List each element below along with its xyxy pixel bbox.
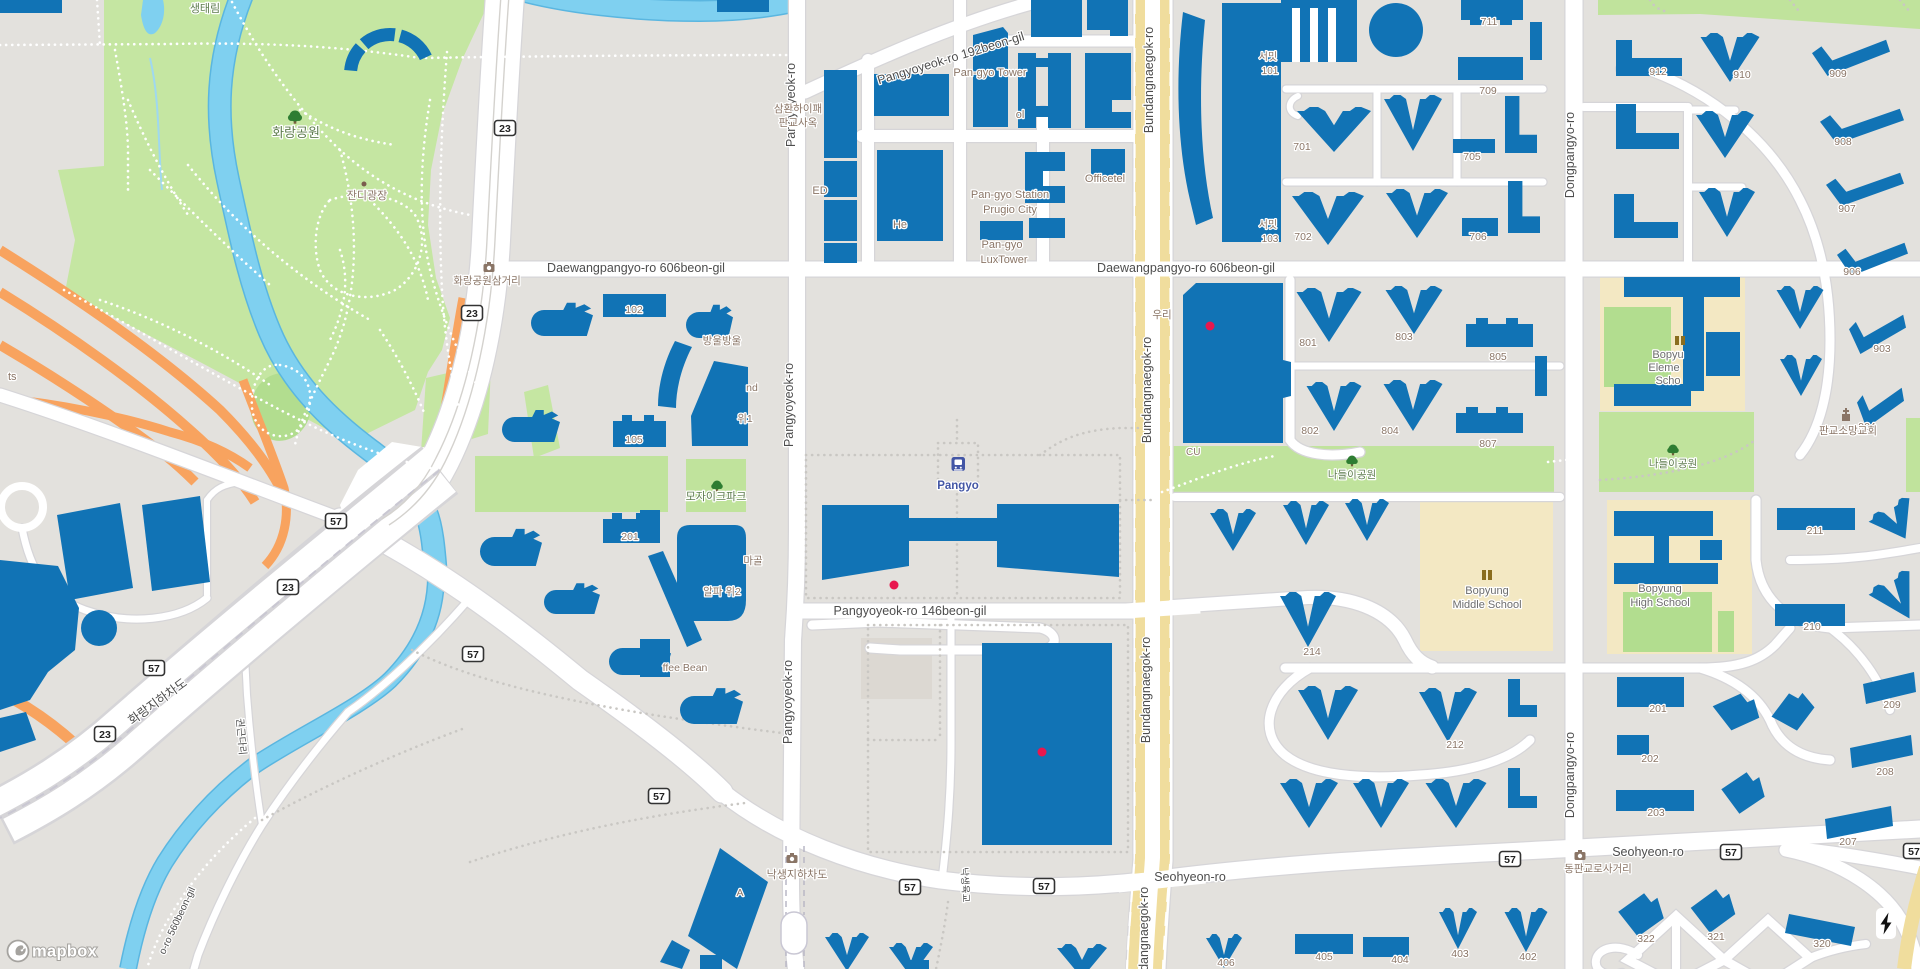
svg-text:Daewangpangyo-ro 606beon-gil: Daewangpangyo-ro 606beon-gil xyxy=(547,261,725,275)
svg-text:Dongpangyo-ro: Dongpangyo-ro xyxy=(1563,732,1577,818)
svg-text:Pangyo: Pangyo xyxy=(937,480,979,492)
svg-text:Prugio City: Prugio City xyxy=(983,204,1037,216)
svg-text:202: 202 xyxy=(1641,753,1659,765)
svg-text:Bundangnaegok-ro: Bundangnaegok-ro xyxy=(1137,887,1151,969)
svg-text:Pangyoyeok-ro 146beon-gil: Pangyoyeok-ro 146beon-gil xyxy=(834,604,987,618)
svg-text:마골: 마골 xyxy=(743,555,763,567)
svg-text:위1: 위1 xyxy=(737,412,753,425)
svg-text:57: 57 xyxy=(1038,881,1050,893)
svg-text:ffee Bean: ffee Bean xyxy=(663,662,708,674)
svg-text:705: 705 xyxy=(1463,151,1481,163)
svg-text:CU: CU xyxy=(1186,447,1200,458)
svg-text:동판교로사거리: 동판교로사거리 xyxy=(1564,863,1632,875)
svg-text:906: 906 xyxy=(1843,266,1861,278)
svg-text:23: 23 xyxy=(99,729,111,741)
svg-text:57: 57 xyxy=(1725,847,1737,859)
svg-text:706: 706 xyxy=(1469,231,1487,243)
svg-text:910: 910 xyxy=(1733,69,1751,81)
svg-text:907: 907 xyxy=(1838,203,1856,215)
svg-text:서밋: 서밋 xyxy=(1259,51,1277,63)
svg-text:403: 403 xyxy=(1451,948,1469,960)
svg-text:211: 211 xyxy=(1807,525,1824,537)
svg-text:406: 406 xyxy=(1217,957,1235,969)
svg-text:알파 위2: 알파 위2 xyxy=(703,585,741,598)
svg-text:57: 57 xyxy=(653,791,665,803)
svg-text:404: 404 xyxy=(1391,954,1409,966)
svg-text:High School: High School xyxy=(1630,597,1689,609)
svg-text:405: 405 xyxy=(1315,951,1333,963)
svg-text:Seohyeon-ro: Seohyeon-ro xyxy=(1612,845,1684,859)
svg-text:709: 709 xyxy=(1479,85,1497,97)
svg-text:He: He xyxy=(893,219,907,231)
svg-text:201: 201 xyxy=(1649,703,1667,715)
svg-text:57: 57 xyxy=(467,649,479,661)
svg-text:A: A xyxy=(736,887,743,899)
svg-text:57: 57 xyxy=(1504,854,1516,866)
svg-text:판교사옥: 판교사옥 xyxy=(779,117,818,129)
svg-text:서밋: 서밋 xyxy=(1259,219,1277,231)
svg-text:판교소망교회: 판교소망교회 xyxy=(1819,425,1877,437)
svg-text:ED: ED xyxy=(812,185,827,197)
svg-text:207: 207 xyxy=(1839,836,1857,848)
svg-text:208: 208 xyxy=(1876,766,1894,778)
svg-text:23: 23 xyxy=(466,308,478,320)
svg-text:57: 57 xyxy=(904,882,916,894)
svg-text:모자이크파크: 모자이크파크 xyxy=(686,490,747,503)
svg-text:Bundangnaegok-ro: Bundangnaegok-ro xyxy=(1142,27,1156,133)
svg-text:Bundangnaegok-ro: Bundangnaegok-ro xyxy=(1140,337,1154,443)
svg-text:ts: ts xyxy=(8,371,17,383)
svg-text:나들이공원: 나들이공원 xyxy=(1649,458,1697,470)
svg-text:909: 909 xyxy=(1829,68,1847,80)
svg-text:나들이공원: 나들이공원 xyxy=(1328,469,1376,481)
svg-text:214: 214 xyxy=(1303,646,1321,658)
svg-text:903: 903 xyxy=(1873,343,1891,355)
svg-text:잔디광장: 잔디광장 xyxy=(347,189,387,202)
svg-text:209: 209 xyxy=(1883,699,1901,711)
svg-text:201: 201 xyxy=(621,531,639,543)
svg-text:801: 801 xyxy=(1299,337,1317,349)
svg-text:57: 57 xyxy=(330,516,342,528)
svg-text:103: 103 xyxy=(1262,234,1279,245)
svg-text:Dongpangyo-ro: Dongpangyo-ro xyxy=(1563,112,1577,198)
svg-text:Seohyeon-ro: Seohyeon-ro xyxy=(1154,870,1226,884)
svg-text:Pangyoyeok-ro: Pangyoyeok-ro xyxy=(781,660,795,744)
svg-text:702: 702 xyxy=(1294,231,1312,243)
svg-text:23: 23 xyxy=(499,123,511,135)
svg-text:Daewangpangyo-ro 606beon-gil: Daewangpangyo-ro 606beon-gil xyxy=(1097,261,1275,275)
svg-text:320: 320 xyxy=(1813,938,1831,950)
svg-text:102: 102 xyxy=(625,304,643,316)
svg-text:낙생육교: 낙생육교 xyxy=(958,867,971,903)
svg-text:701: 701 xyxy=(1293,141,1311,153)
svg-text:Scho: Scho xyxy=(1655,375,1680,387)
svg-text:57: 57 xyxy=(148,663,160,675)
svg-text:212: 212 xyxy=(1446,739,1464,751)
svg-text:Officetel: Officetel xyxy=(1085,173,1125,185)
svg-text:203: 203 xyxy=(1647,807,1665,819)
svg-text:화랑공원삼거리: 화랑공원삼거리 xyxy=(453,275,521,287)
svg-text:807: 807 xyxy=(1479,438,1497,450)
svg-text:402: 402 xyxy=(1519,951,1537,963)
svg-text:804: 804 xyxy=(1381,425,1399,437)
svg-text:Pan-gyo Tower: Pan-gyo Tower xyxy=(953,67,1027,79)
svg-text:803: 803 xyxy=(1395,331,1413,343)
svg-text:삼환하이패: 삼환하이패 xyxy=(774,102,822,115)
svg-text:Pangyoyeok-ro: Pangyoyeok-ro xyxy=(782,363,796,447)
svg-text:210: 210 xyxy=(1803,621,1821,633)
svg-text:802: 802 xyxy=(1301,425,1319,437)
svg-text:Pan-gyo Station: Pan-gyo Station xyxy=(971,189,1049,201)
svg-text:912: 912 xyxy=(1649,66,1667,78)
svg-text:805: 805 xyxy=(1489,351,1507,363)
svg-text:Pan-gyo: Pan-gyo xyxy=(982,239,1023,251)
svg-text:nd: nd xyxy=(746,382,758,394)
svg-text:화랑공원: 화랑공원 xyxy=(272,125,320,140)
svg-text:생태림: 생태림 xyxy=(190,2,220,15)
svg-text:우리: 우리 xyxy=(1152,309,1171,321)
svg-text:Bopyung: Bopyung xyxy=(1465,585,1508,597)
svg-text:LuxTower: LuxTower xyxy=(980,254,1027,266)
svg-text:Bopyu: Bopyu xyxy=(1652,349,1683,361)
svg-text:mapbox: mapbox xyxy=(32,943,98,961)
svg-text:908: 908 xyxy=(1834,136,1852,148)
svg-text:322: 322 xyxy=(1637,933,1655,945)
svg-text:Middle School: Middle School xyxy=(1452,599,1521,611)
svg-text:Bopyung: Bopyung xyxy=(1638,583,1681,595)
svg-text:ol: ol xyxy=(1016,109,1025,121)
svg-text:Bundangnaegok-ro: Bundangnaegok-ro xyxy=(1139,637,1153,743)
svg-text:101: 101 xyxy=(1262,66,1279,77)
svg-text:방울방울: 방울방울 xyxy=(703,335,742,347)
svg-text:57: 57 xyxy=(1908,846,1920,858)
svg-text:711: 711 xyxy=(1481,16,1498,28)
svg-text:낙생지하차도: 낙생지하차도 xyxy=(767,867,828,881)
svg-text:105: 105 xyxy=(625,434,643,446)
svg-text:23: 23 xyxy=(282,582,294,594)
svg-text:321: 321 xyxy=(1707,931,1725,943)
svg-text:Eleme: Eleme xyxy=(1648,362,1679,374)
